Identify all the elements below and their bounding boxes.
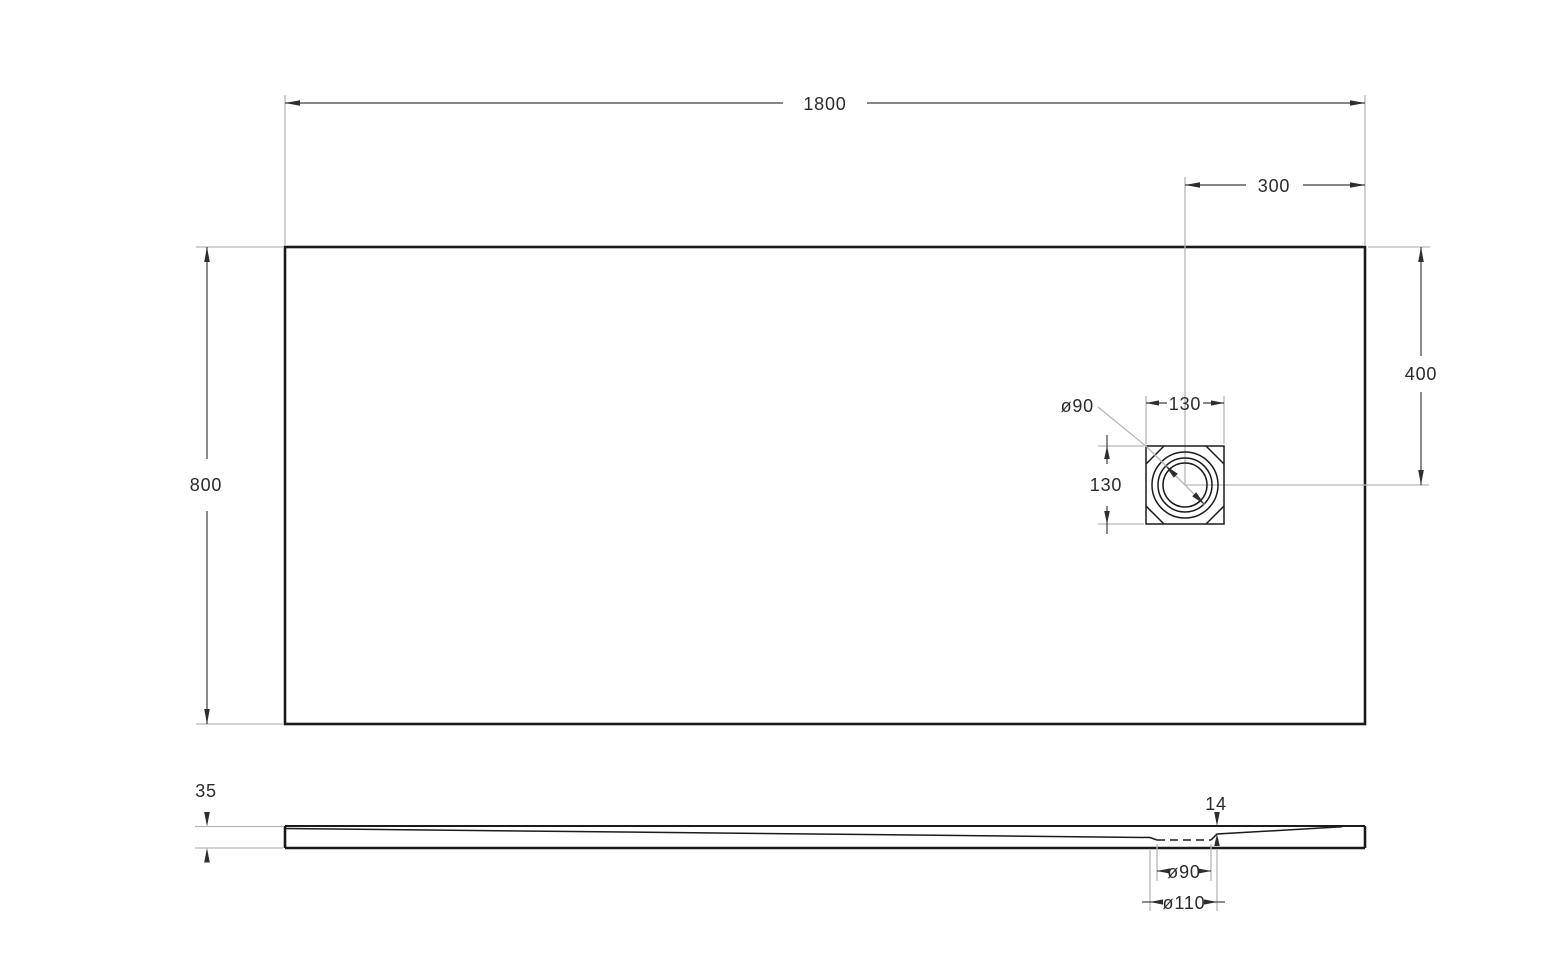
- floor-slope-right: [1211, 827, 1342, 840]
- arrowhead-down: [204, 709, 210, 724]
- dim-drain-hole-diameter: ø90: [1157, 844, 1211, 882]
- dim-label-drain-flange-diameter: ø110: [1163, 893, 1206, 913]
- technical-drawing: 1800 300 400 800: [0, 0, 1560, 960]
- arrowhead-down: [204, 812, 210, 827]
- arrowhead-right: [1350, 182, 1365, 188]
- arrowhead-up: [204, 848, 210, 863]
- arrowhead-left: [1185, 182, 1200, 188]
- dim-label-drain-hole-diameter: ø90: [1167, 862, 1200, 882]
- side-view: 35 14 ø90 ø110: [195, 781, 1365, 913]
- dim-label-thickness: 35: [195, 781, 217, 801]
- top-view: 1800 300 400 800: [190, 94, 1437, 724]
- drawing-canvas: 1800 300 400 800: [0, 0, 1560, 960]
- arrowhead-right: [1204, 899, 1217, 904]
- dim-label-recess-depth: 14: [1205, 794, 1227, 814]
- dim-drain-square-height: 130: [1090, 435, 1144, 534]
- arrowhead-right: [1350, 100, 1365, 106]
- arrowhead-left: [1150, 899, 1163, 904]
- dim-overall-depth: 800: [190, 247, 284, 724]
- dim-drain-offset-top: 400: [1368, 247, 1437, 485]
- dim-overall-width: 1800: [285, 94, 1365, 245]
- dim-label-drain-offset-top: 400: [1405, 364, 1437, 384]
- dim-label-drain-square-width: 130: [1169, 394, 1201, 414]
- arrowhead-right: [1211, 400, 1224, 405]
- arrowhead-down: [1418, 470, 1424, 485]
- dim-label-drain-square-height: 130: [1090, 475, 1122, 495]
- floor-slope-left: [285, 829, 1157, 841]
- arrowhead-down: [1214, 812, 1220, 826]
- arrowhead-left: [285, 100, 300, 106]
- arrowhead-up: [1104, 446, 1110, 459]
- dim-label-overall-width: 1800: [803, 94, 846, 114]
- dim-drain-offset-right: 300: [1185, 176, 1365, 196]
- arrowhead-down: [1104, 511, 1110, 524]
- arrowhead-up: [204, 247, 210, 262]
- dim-label-overall-depth: 800: [190, 475, 222, 495]
- dim-recess-depth: 14: [1205, 794, 1227, 846]
- dim-label-drain-diameter: ø90: [1061, 396, 1094, 416]
- arrowhead-left: [1146, 400, 1159, 405]
- dim-label-drain-offset-right: 300: [1258, 176, 1290, 196]
- dim-thickness: 35: [195, 781, 283, 863]
- leader-line: [1098, 407, 1147, 447]
- arrowhead-up: [1418, 247, 1424, 262]
